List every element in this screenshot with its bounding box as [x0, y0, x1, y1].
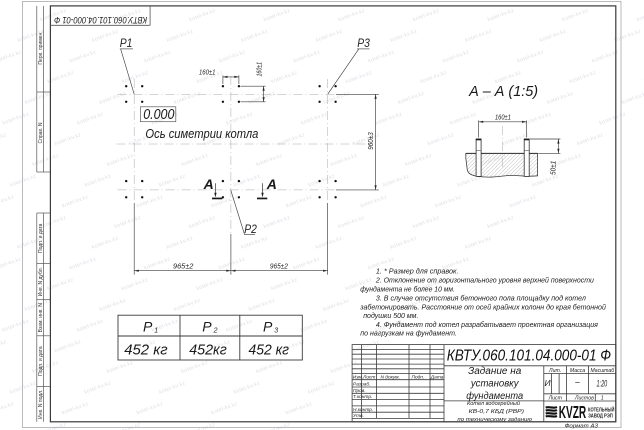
svg-text:Листов: Листов — [574, 396, 594, 402]
svg-text:452 кг: 452 кг — [124, 341, 168, 358]
svg-text:965±2: 965±2 — [270, 264, 288, 271]
svg-text:Инв. N подл.: Инв. N подл. — [38, 389, 44, 418]
svg-text:установку: установку — [470, 379, 520, 390]
svg-text:Т.контр.: Т.контр. — [353, 394, 372, 400]
svg-text:Котел водогрейный: Котел водогрейный — [467, 400, 520, 407]
svg-text:50±1: 50±1 — [550, 161, 557, 175]
svg-text:Разраб.: Разраб. — [353, 381, 370, 387]
svg-text:по техническому заданию: по техническому заданию — [457, 417, 532, 423]
svg-text:0.000: 0.000 — [143, 107, 174, 123]
svg-text:965±2: 965±2 — [173, 264, 193, 271]
svg-text:Взам. инв. N: Взам. инв. N — [38, 303, 44, 333]
svg-text:1: 1 — [601, 396, 604, 402]
svg-text:КОТЕЛЬНЫЙ: КОТЕЛЬНЫЙ — [588, 405, 615, 413]
svg-text:Справ. N: Справ. N — [38, 122, 44, 143]
svg-text:452кг: 452кг — [189, 341, 227, 358]
svg-text:Изм.Лист: Изм.Лист — [353, 375, 376, 381]
svg-text:P3: P3 — [357, 36, 370, 50]
svg-text:Подп.: Подп. — [412, 375, 425, 381]
svg-text:Инв. N дубл.: Инв. N дубл. — [38, 267, 44, 296]
svg-text:160±1: 160±1 — [256, 62, 263, 77]
svg-text:А – А (1:5): А – А (1:5) — [468, 83, 538, 100]
svg-text:КВТУ.060.101.04.000-01 Ф: КВТУ.060.101.04.000-01 Ф — [54, 14, 147, 25]
svg-text:3. В случае отсутствия бетонно: 3. В случае отсутствия бетонного пола пл… — [376, 294, 587, 303]
svg-text:Н.контр.: Н.контр. — [353, 407, 373, 413]
svg-text:по нагрузкам на фундамент.: по нагрузкам на фундамент. — [360, 329, 457, 338]
svg-text:Формат А3: Формат А3 — [565, 423, 599, 429]
svg-text:И: И — [545, 378, 552, 388]
svg-text:Перв. примен.: Перв. примен. — [38, 31, 44, 64]
svg-text:1:20: 1:20 — [597, 378, 608, 388]
svg-text:P2: P2 — [244, 222, 257, 236]
svg-text:КВ-0,7 КБД (РВР): КВ-0,7 КБД (РВР) — [469, 409, 525, 415]
svg-text:N докум.: N докум. — [381, 375, 400, 381]
svg-text:A: A — [266, 176, 277, 192]
svg-text:P1: P1 — [120, 36, 133, 50]
svg-text:160±1: 160±1 — [199, 70, 216, 77]
svg-text:Утв.: Утв. — [353, 413, 364, 419]
svg-text:KVZR: KVZR — [559, 402, 587, 422]
svg-text:960±3: 960±3 — [368, 132, 375, 149]
svg-text:1. * Размер для справок.: 1. * Размер для справок. — [376, 267, 459, 276]
svg-text:Пров.: Пров. — [353, 388, 366, 394]
svg-text:160±1: 160±1 — [495, 115, 511, 122]
svg-text:Подп. и дата: Подп. и дата — [38, 223, 44, 253]
svg-text:A: A — [203, 176, 214, 192]
svg-text:ЗАВОД РЭП: ЗАВОД РЭП — [588, 413, 613, 419]
svg-text:452 кг: 452 кг — [249, 341, 290, 358]
svg-text:Задание на: Задание на — [468, 366, 522, 377]
svg-text:Лист: Лист — [548, 396, 563, 402]
svg-text:Ось симетрии котла: Ось симетрии котла — [145, 126, 258, 141]
svg-text:P 2: P 2 — [202, 318, 217, 334]
svg-text:Подп. и дата: Подп. и дата — [38, 346, 44, 376]
svg-text:Масса: Масса — [570, 368, 585, 374]
svg-text:Масштаб: Масштаб — [591, 368, 616, 374]
svg-text:2. Отклонение от горизонтально: 2. Отклонение от горизонтального уровня … — [375, 276, 594, 285]
svg-text:Дата: Дата — [430, 375, 444, 381]
svg-text:P 3: P 3 — [263, 318, 278, 334]
svg-text:–: – — [574, 378, 580, 387]
svg-text:КВТУ.060.101.04.000-01 Ф: КВТУ.060.101.04.000-01 Ф — [447, 348, 612, 365]
svg-text:Лит.: Лит. — [548, 368, 561, 374]
svg-text:фундамента не более 10 мм.: фундамента не более 10 мм. — [360, 284, 455, 293]
svg-text:подушки 500 мм.: подушки 500 мм. — [363, 311, 418, 320]
